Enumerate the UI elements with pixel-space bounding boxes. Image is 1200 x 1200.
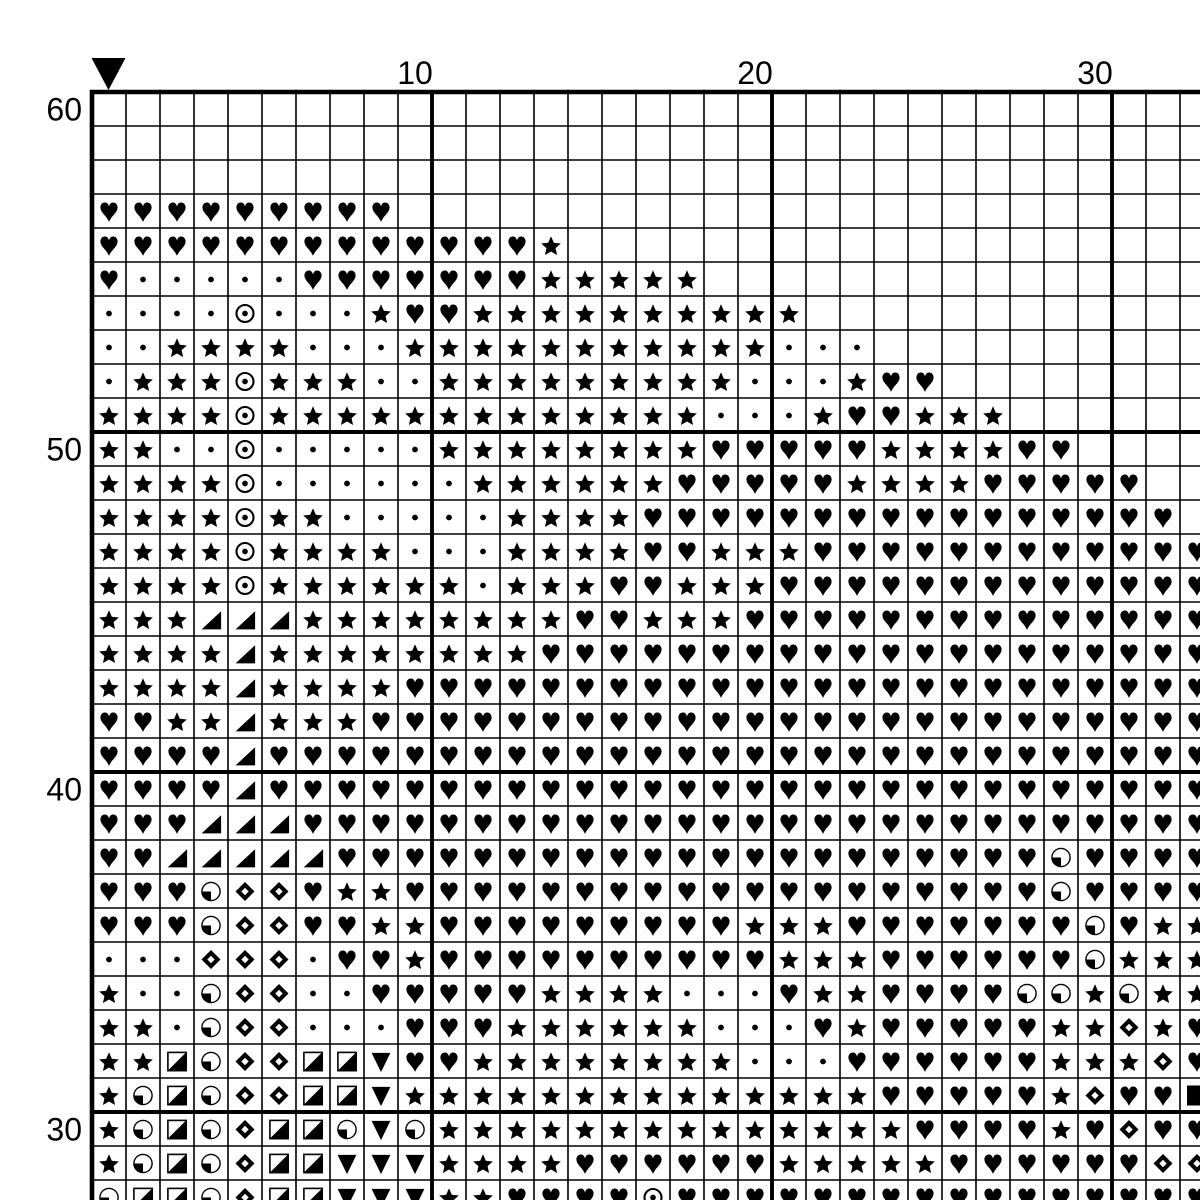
svg-text:20: 20: [737, 55, 773, 91]
svg-text:60: 60: [46, 92, 82, 128]
svg-text:30: 30: [1077, 55, 1113, 91]
svg-text:50: 50: [46, 432, 82, 468]
svg-text:10: 10: [397, 55, 433, 91]
svg-text:40: 40: [46, 772, 82, 808]
svg-text:30: 30: [46, 1112, 82, 1148]
